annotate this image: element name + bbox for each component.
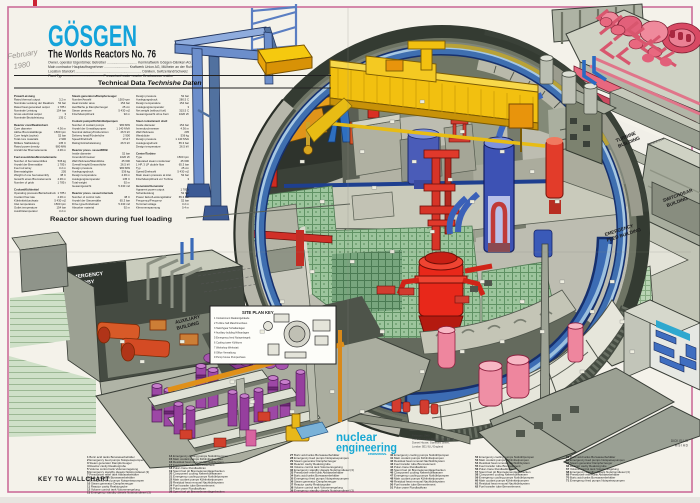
svg-text:135 C: 135 C — [59, 116, 66, 120]
svg-text:Rating/Antriebsleistung: Rating/Antriebsleistung — [72, 141, 101, 145]
svg-text:7 Workshop Werkstatt: 7 Workshop Werkstatt — [214, 346, 239, 349]
svg-text:February 1980: February 1980 — [412, 434, 430, 438]
svg-text:39 Emergency standby diesels: 39 Emergency standby diesels Notstromdie… — [290, 488, 354, 492]
svg-text:92 m: 92 m — [124, 206, 131, 210]
svg-text:26 Spent fuel pit Brenneleme: 26 Spent fuel pit Brennelementlagerbecke… — [169, 489, 225, 493]
svg-text:9 Pump house Pumpenhaus: 9 Pump house Pumpenhaus — [214, 356, 246, 359]
svg-text:26.5 kV: 26.5 kV — [121, 141, 131, 145]
svg-text:Absorber material: Absorber material — [72, 206, 94, 210]
svg-text:The Worlds Reactors No. 76: The Worlds Reactors No. 76 — [48, 49, 156, 61]
svg-text:4.36 m: 4.36 m — [57, 148, 66, 152]
svg-text:1 785 t: 1 785 t — [57, 180, 66, 184]
svg-text:51 Polar crane Rundlaufkran: 51 Polar crane Rundlaufkran — [390, 485, 427, 489]
svg-text:Design temperature: Design temperature — [136, 144, 161, 148]
svg-text:Plant Typ ....................: Plant Typ ..............................… — [48, 74, 174, 78]
svg-text:London SE1 9LU England: London SE1 9LU England — [412, 444, 444, 448]
svg-text:Main contractor Hauptauftragne: Main contractor Hauptauftragnehmer .....… — [48, 65, 194, 69]
svg-text:Klemmenspannung: Klemmenspannung — [136, 206, 161, 210]
svg-text:Gesamtgewicht: Gesamtgewicht — [72, 184, 91, 188]
svg-text:13 Emergency standby diesels: 13 Emergency standby diesels Notstromdie… — [87, 490, 151, 494]
svg-text:5 Emergency feed Notspeisege: 5 Emergency feed Notspeisegeb. — [214, 337, 251, 340]
svg-text:Nominale Bruttoleistung: Nominale Bruttoleistung — [14, 116, 44, 120]
svg-text:4 Auxiliary building Hilfsan: 4 Auxiliary building Hilfsanlagen — [214, 332, 250, 335]
svg-text:Reactor shown during fuel load: Reactor shown during fuel loading — [50, 216, 172, 223]
svg-text:M S I A D: M S I A D — [675, 444, 689, 448]
svg-text:71 Emergency feed pumps Nots: 71 Emergency feed pumps Notspeisepumpen — [566, 479, 625, 483]
svg-text:1 Containment Reaktorgebäude: 1 Containment Reaktorgebäude — [214, 317, 250, 320]
svg-text:Frischdampfdruck vor Turbine: Frischdampfdruck vor Turbine — [136, 177, 173, 181]
svg-text:62 Fuel transfer tube Brenne: 62 Fuel transfer tube Brennelement — [475, 485, 521, 489]
svg-text:Austrittstemperatur: Austrittstemperatur — [14, 209, 38, 213]
svg-text:Location Standort ............: Location Standort ......................… — [48, 70, 188, 74]
svg-text:Anzahl der Brennelemente: Anzahl der Brennelemente — [14, 148, 48, 152]
svg-text:SITE PLAN KEY: SITE PLAN KEY — [242, 310, 274, 315]
svg-text:Frischdampfdruck: Frischdampfdruck — [72, 112, 95, 116]
svg-text:3 Switchgear Schaltanlagen: 3 Switchgear Schaltanlagen — [214, 327, 246, 330]
svg-text:Technical Data Technishe Daten: Technical Data Technishe Daten — [98, 80, 202, 87]
svg-text:8 Office Verwaltung: 8 Office Verwaltung — [214, 351, 236, 354]
svg-text:Gesamtgewicht ohne Kern: Gesamtgewicht ohne Kern — [136, 112, 169, 116]
svg-text:Owner, operator Eigentümer, Be: Owner, operator Eigentümer, Betreiber ..… — [48, 61, 191, 65]
svg-text:6 Cooling tower Kühlturm: 6 Cooling tower Kühlturm — [214, 342, 242, 345]
svg-text:0.4 m: 0.4 m — [182, 206, 190, 210]
svg-text:Number of grids: Number of grids — [14, 180, 34, 184]
svg-text:DICK ELLIS: DICK ELLIS — [671, 439, 688, 443]
svg-text:©IPC Business Press Limited 19: ©IPC Business Press Limited 1980 — [412, 437, 454, 441]
svg-text:1020 t/h: 1020 t/h — [179, 112, 190, 116]
svg-text:5 430 m2: 5 430 m2 — [118, 184, 130, 188]
svg-text:engineering: engineering — [336, 443, 397, 455]
svg-text:INTERNATIONAL: INTERNATIONAL — [368, 452, 387, 456]
svg-text:Dorset House, Stamford Street,: Dorset House, Stamford Street, — [412, 441, 450, 445]
svg-text:2 Turbine hall Maschinenhaus: 2 Turbine hall Maschinenhaus — [214, 322, 248, 325]
svg-text:92 m: 92 m — [124, 112, 131, 116]
svg-text:26.5 kV: 26.5 kV — [180, 144, 190, 148]
svg-text:3.2 m: 3.2 m — [59, 209, 67, 213]
